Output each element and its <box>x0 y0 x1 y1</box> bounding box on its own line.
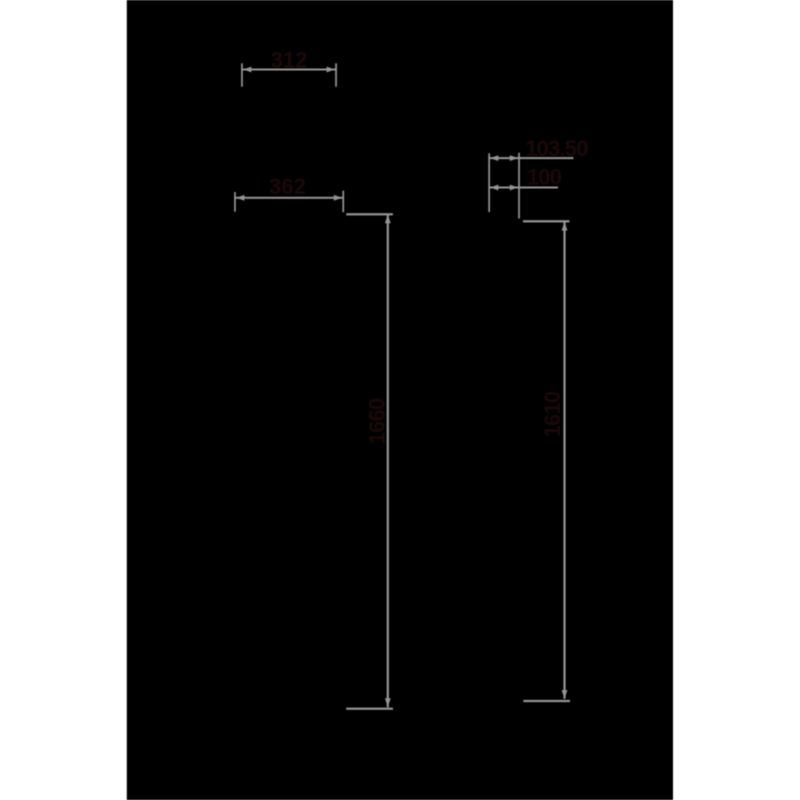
svg-text:103.50: 103.50 <box>525 136 588 161</box>
svg-text:1660: 1660 <box>365 398 390 444</box>
svg-text:362: 362 <box>269 174 306 199</box>
svg-text:1610: 1610 <box>540 391 565 437</box>
svg-text:100: 100 <box>527 164 562 189</box>
